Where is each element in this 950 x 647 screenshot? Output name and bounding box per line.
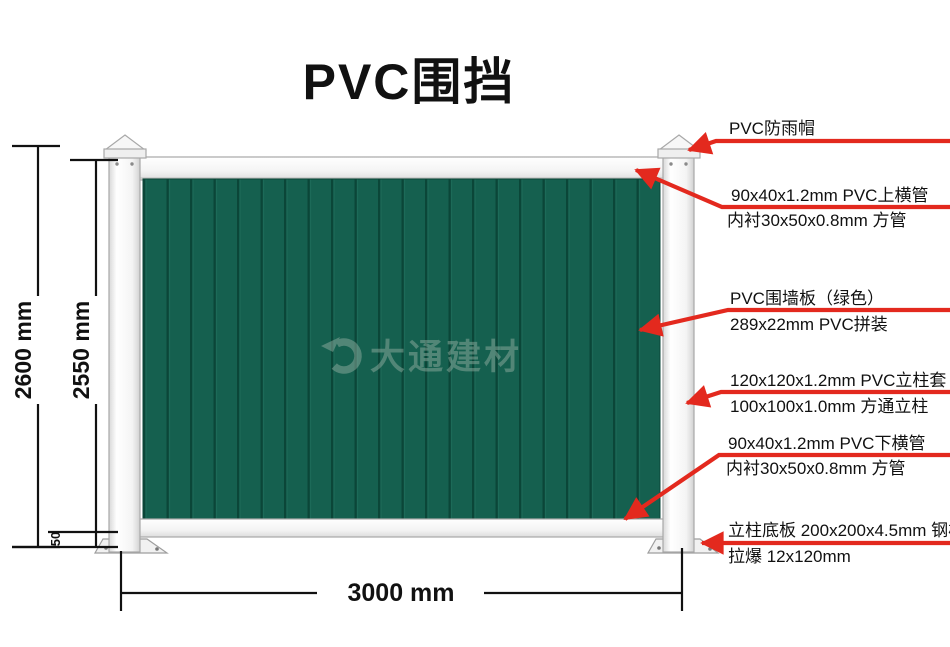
right-post <box>658 135 700 552</box>
dimension-total-height-label: 2600 mm <box>10 301 36 399</box>
callout-panel-line1: PVC围墙板（绿色） <box>730 289 884 308</box>
diagram-canvas: PVC围挡 大通建材 <box>0 0 950 647</box>
callout-post-line2: 100x100x1.0mm 方通立柱 <box>730 397 928 416</box>
callout-panel-line2: 289x22mm PVC拼装 <box>730 315 888 334</box>
left-post <box>104 135 146 552</box>
callout-top-rail-line1: 90x40x1.2mm PVC上横管 <box>731 186 928 205</box>
screw-dot <box>669 162 672 165</box>
left-rain-cap <box>104 135 146 158</box>
dimension-width-label: 3000 mm <box>347 579 454 607</box>
screw-dot <box>130 162 133 165</box>
pvc-fence-diagram-page: PVC围挡 大通建材 <box>0 0 950 647</box>
callout-labels: PVC防雨帽 90x40x1.2mm PVC上横管 内衬30x50x0.8mm … <box>726 119 950 566</box>
screw-dot <box>684 162 687 165</box>
callout-post-line1: 120x120x1.2mm PVC立柱套 <box>730 371 946 390</box>
callout-rain-cap-line1: PVC防雨帽 <box>729 119 815 138</box>
dimension-panel-height-label: 2550 mm <box>68 301 94 399</box>
callout-bottom-rail-line2: 内衬30x50x0.8mm 方管 <box>726 459 906 478</box>
callout-base-plate-line2: 拉爆 12x120mm <box>728 547 851 566</box>
dimension-ground-clearance-label: 50 <box>48 532 63 546</box>
bottom-rail <box>138 519 665 537</box>
callout-bottom-rail-line1: 90x40x1.2mm PVC下横管 <box>728 434 925 453</box>
callout-top-rail-line2: 内衬30x50x0.8mm 方管 <box>727 211 907 230</box>
top-rail <box>138 157 665 180</box>
watermark-brand-text: 大通建材 <box>370 338 522 377</box>
leader-rain-cap <box>689 141 950 150</box>
fence-structure: 大通建材 <box>95 135 718 553</box>
screw-dot <box>115 162 118 165</box>
callout-base-plate-line1: 立柱底板 200x200x4.5mm 钢板 <box>728 521 950 540</box>
page-title: PVC围挡 <box>303 54 516 110</box>
